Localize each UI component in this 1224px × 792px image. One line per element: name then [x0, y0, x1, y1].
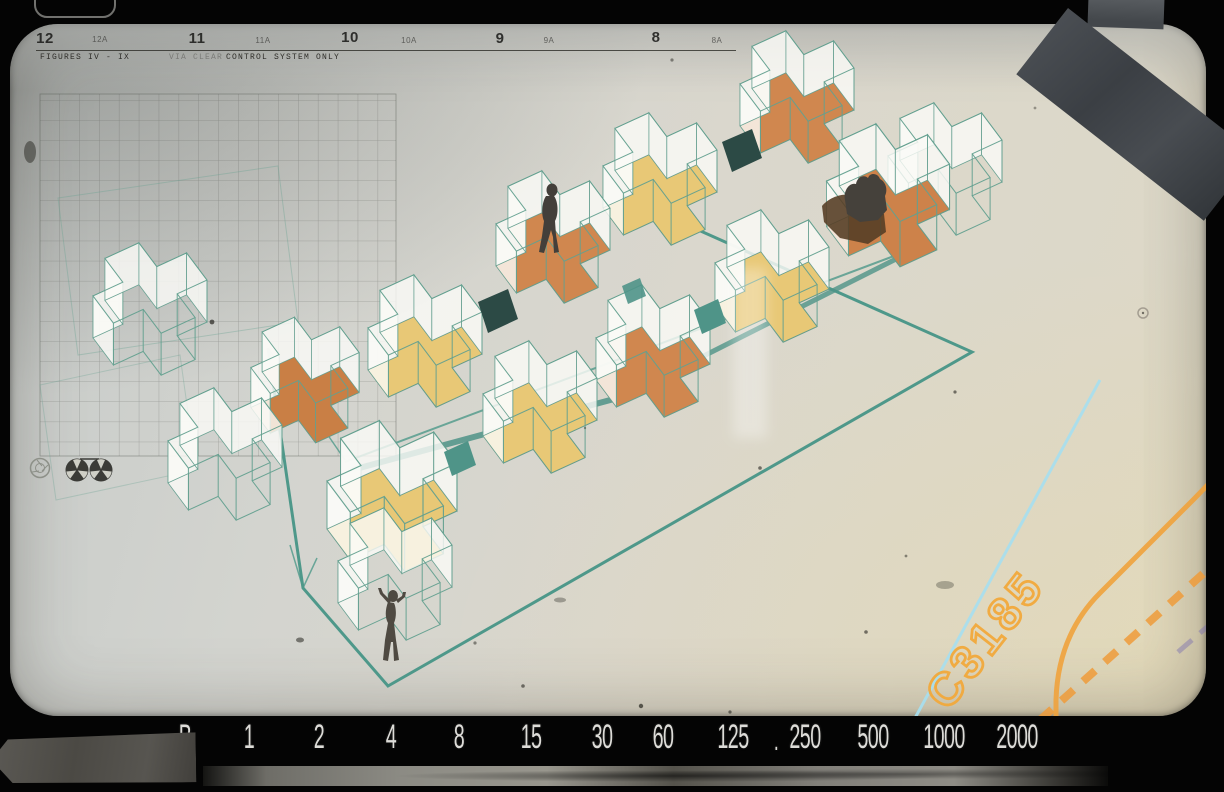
module — [338, 508, 452, 640]
film-edge-markings: C3185 — [915, 380, 1206, 716]
orange-edge-curve — [1056, 468, 1206, 716]
module — [368, 275, 482, 407]
tape-top-right — [1087, 0, 1164, 29]
frame-number: 11A — [255, 36, 270, 45]
metal-strip — [203, 766, 1108, 786]
frame-number: 10 — [341, 29, 359, 46]
frame-number: 10A — [401, 36, 417, 45]
module — [715, 210, 829, 342]
shutter-stop[interactable]: 250 — [789, 718, 820, 757]
shutter-stop[interactable]: 60 — [653, 718, 674, 757]
film-caption-right: CONTROL SYSTEM ONLY — [226, 53, 340, 62]
module — [483, 341, 597, 473]
frame-number: 9 — [496, 30, 505, 47]
shutter-stop[interactable]: 1000 — [923, 718, 965, 757]
film-reel-icon — [66, 459, 89, 482]
film-caption-left: FIGURES IV - IX — [40, 53, 130, 62]
frame-number: 12A — [92, 35, 108, 44]
aperture-icon — [31, 459, 50, 478]
frame-number: 12 — [36, 30, 54, 47]
film-slide-viewer: .wallf{fill:rgba(250,250,246,.82);stroke… — [0, 0, 1224, 792]
shutter-stop[interactable]: 1 — [244, 718, 254, 757]
frame-number: 11 — [189, 30, 206, 47]
shutter-stop[interactable]: 8 — [454, 718, 464, 757]
film-edge-rule — [36, 50, 736, 51]
module — [603, 113, 717, 245]
person-arms-raised — [378, 588, 406, 661]
shutter-stop[interactable]: 500 — [857, 718, 888, 757]
axonometric-drawing: .wallf{fill:rgba(250,250,246,.82);stroke… — [10, 24, 1206, 716]
shutter-stop[interactable]: 30 — [592, 718, 613, 757]
film-caption-mid: VIA CLEAR — [169, 53, 223, 62]
shutter-stop[interactable]: 15 — [521, 718, 542, 757]
light-flare — [733, 268, 767, 438]
slide-photo: .wallf{fill:rgba(250,250,246,.82);stroke… — [10, 24, 1206, 716]
shutter-stop[interactable]: 4 — [386, 718, 396, 757]
orange-dashed-line — [1040, 555, 1206, 716]
module — [596, 285, 710, 417]
slide-mount-corner-outline — [34, 0, 116, 18]
purple-dash-fragment — [1178, 621, 1206, 652]
tape-bottom-left — [0, 732, 196, 786]
frame-number: 8A — [712, 36, 723, 45]
shutter-dot-separator: . — [774, 724, 778, 758]
frame-number: 9A — [544, 36, 555, 45]
shutter-dial[interactable]: B 1 2 4 8 15 30 60 125 . 250 500 1000 20… — [150, 712, 1070, 766]
frame-number: 8 — [652, 29, 661, 46]
shutter-stop[interactable]: 2000 — [996, 718, 1038, 757]
shutter-stop[interactable]: 125 — [717, 718, 748, 757]
module — [740, 31, 854, 163]
shutter-stop[interactable]: 2 — [314, 718, 324, 757]
film-reel-icon — [90, 459, 113, 482]
edge-code-text: C3185 — [915, 560, 1055, 716]
